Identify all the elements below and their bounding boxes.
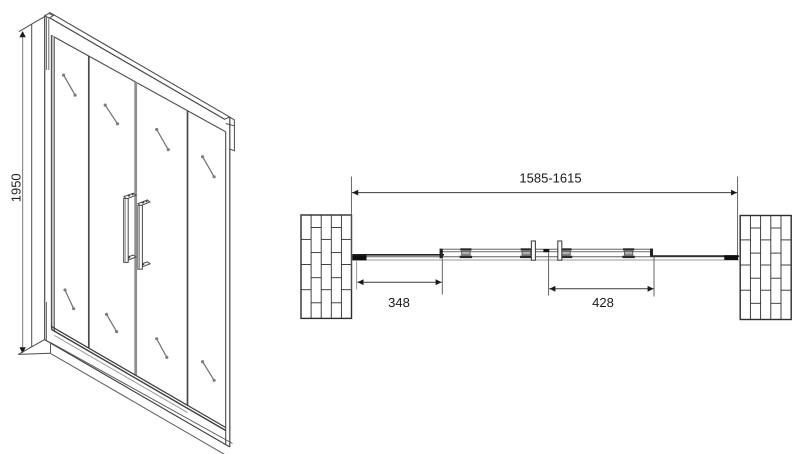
svg-text:1585-1615: 1585-1615: [519, 171, 581, 186]
svg-text:1950: 1950: [8, 173, 23, 202]
svg-text:348: 348: [388, 295, 410, 310]
svg-text:428: 428: [592, 295, 614, 310]
